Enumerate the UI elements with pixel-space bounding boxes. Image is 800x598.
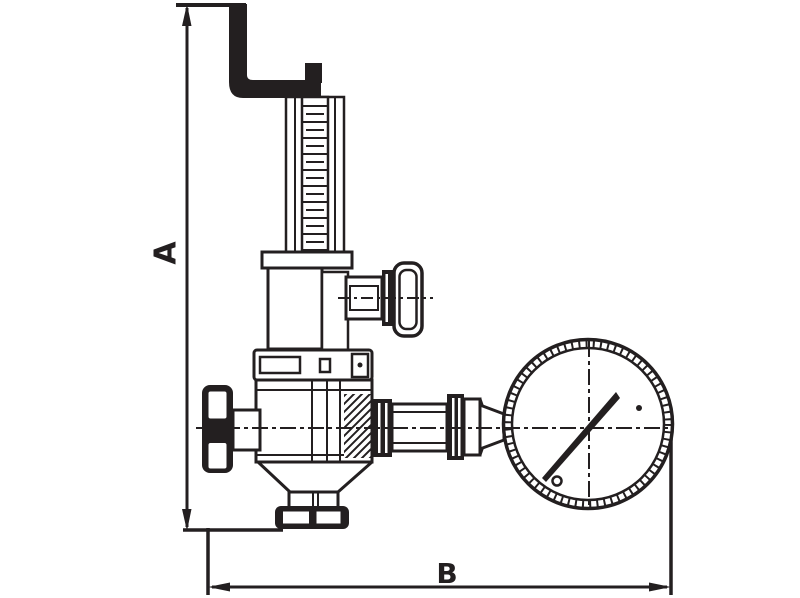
- dimension-a-arrow-top: [182, 4, 192, 26]
- outlet-flange-slot-left: [283, 512, 309, 524]
- flange-detail-dot: [358, 363, 363, 368]
- dimension-a-arrow-bottom: [182, 509, 192, 531]
- side-handwheel-assembly: [338, 263, 433, 336]
- spring-bonnet: [262, 252, 352, 350]
- adjusting-screw: [286, 97, 344, 253]
- valve-body: [256, 360, 380, 492]
- bonnet-body: [268, 268, 322, 349]
- threaded-rod: [302, 97, 328, 253]
- inlet-stem: [233, 410, 260, 450]
- flange-window: [260, 357, 300, 373]
- handle-lever: [229, 4, 321, 98]
- adjusting-handle: [229, 4, 322, 98]
- dimension-b-arrow-right: [649, 583, 671, 592]
- side-outlet-tube: [322, 272, 348, 350]
- technical-drawing-canvas: A B: [0, 0, 800, 598]
- dimension-a-label: A: [149, 241, 184, 265]
- flange-detail-rect: [320, 359, 330, 372]
- body-bottom-taper: [258, 462, 372, 492]
- valve-with-gauge-drawing: A B: [0, 0, 800, 598]
- bonnet-top-plate: [262, 252, 352, 268]
- inlet-handwheel-slot-bottom: [209, 443, 227, 469]
- dimension-b-label: B: [436, 557, 457, 590]
- inlet-handwheel-slot-top: [209, 392, 227, 419]
- dimension-b-arrow-left: [208, 583, 230, 592]
- bottom-outlet: [275, 492, 349, 529]
- gauge-dial-dot: [636, 405, 642, 411]
- outlet-flange-slot-right: [317, 512, 341, 524]
- top-flange: [254, 350, 372, 380]
- pressure-gauge: [504, 340, 673, 509]
- side-handwheel-inner: [400, 270, 417, 329]
